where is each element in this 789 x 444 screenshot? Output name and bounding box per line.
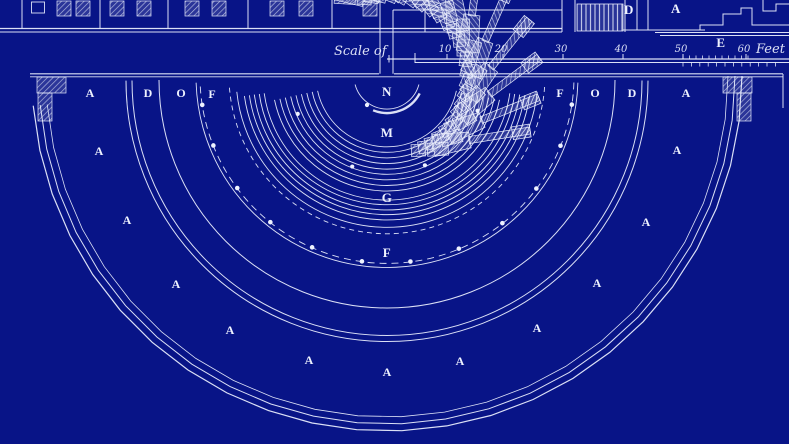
scale-unit: Feet (755, 42, 786, 57)
ruler-tick-label: 50 (675, 44, 688, 55)
axis-section-label: G (382, 190, 393, 205)
buttress-block (457, 42, 469, 56)
marker-dot (211, 143, 216, 148)
cavea-section-label: A (383, 365, 392, 379)
cavea-section-label: A (673, 143, 682, 157)
cavea-section-label: A (593, 276, 602, 290)
marker-dot (569, 102, 574, 107)
stage-section-label: A (671, 1, 681, 16)
cavea-section-label: A (123, 213, 132, 227)
buttress-block (357, 0, 372, 5)
cavea-section-label: A (533, 321, 542, 335)
marker-dot (408, 259, 413, 264)
marker-dot (200, 103, 205, 108)
marker-dot (310, 245, 315, 250)
wall-stub-block (334, 0, 356, 5)
column-pier (76, 1, 90, 16)
axis-section-label: N (382, 84, 392, 99)
buttress (357, 0, 372, 5)
marker-dot (500, 221, 505, 226)
theatre-blueprint: Scale of Feet 102030405060 DAEADOFFODANM… (0, 0, 789, 444)
ring-section-label: O (590, 86, 599, 100)
marker-dot (350, 164, 354, 168)
cavea-section-label: A (226, 323, 235, 337)
marker-dot (360, 259, 365, 264)
axis-section-label: F (383, 245, 391, 260)
ruler-tick-label: 40 (614, 44, 628, 55)
column-pier (270, 1, 284, 16)
staircase-block (577, 4, 623, 31)
blueprint-canvas: Scale of Feet 102030405060 DAEADOFFODANM… (0, 0, 789, 444)
ring-section-label: A (682, 86, 691, 100)
buttress (457, 42, 469, 56)
corner-block (37, 77, 66, 93)
stage-section-label: E (716, 35, 725, 50)
ring-section-label: A (86, 86, 95, 100)
cavea-section-label: A (172, 277, 181, 291)
axis-section-label: M (381, 125, 394, 140)
marker-dot (423, 163, 427, 167)
ring-section-label: F (208, 87, 215, 101)
stage-section-label: D (624, 2, 634, 17)
ring-section-label: D (628, 86, 637, 100)
marker-dot (457, 246, 462, 251)
cavea-section-label: A (305, 353, 314, 367)
column-pier (299, 1, 313, 16)
background (0, 0, 789, 444)
marker-dot (558, 143, 563, 148)
ring-section-label: F (556, 86, 563, 100)
marker-dot (268, 220, 273, 225)
marker-dot (296, 112, 300, 116)
ring-section-label: D (144, 86, 153, 100)
ruler-tick-label: 60 (738, 44, 751, 55)
column-pier (57, 1, 71, 16)
column-pier (185, 1, 199, 16)
buttress-block (411, 144, 426, 157)
marker-dot (235, 186, 240, 191)
wall-stub (334, 0, 356, 5)
column-pier (137, 1, 151, 16)
column-pier (110, 1, 124, 16)
ruler-tick-label: 30 (555, 44, 568, 55)
buttress (411, 144, 426, 157)
scale-label: Scale of (334, 44, 389, 59)
marker-dot (534, 186, 539, 191)
marker-dot (475, 109, 479, 113)
ruler-tick-label: 10 (439, 44, 452, 55)
cavea-section-label: A (95, 144, 104, 158)
cavea-section-label: A (642, 215, 651, 229)
column-pier (212, 1, 226, 16)
ring-section-label: O (176, 86, 185, 100)
marker-dot (365, 103, 369, 107)
cavea-section-label: A (456, 354, 465, 368)
